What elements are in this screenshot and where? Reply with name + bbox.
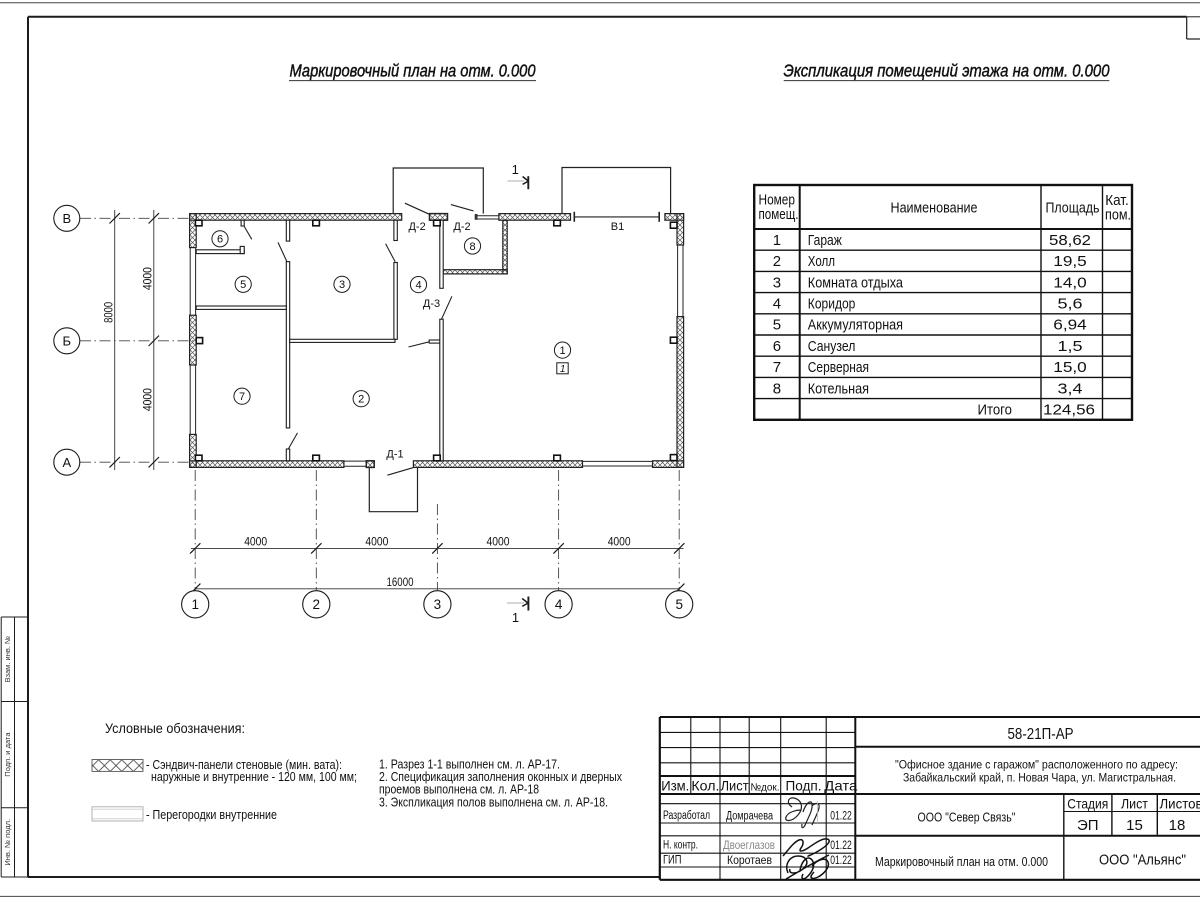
svg-text:5,6: 5,6 (1058, 296, 1083, 313)
svg-text:Площадь: Площадь (1046, 200, 1100, 217)
svg-text:8: 8 (469, 241, 475, 253)
svg-text:Н. контр.: Н. контр. (663, 840, 698, 852)
svg-text:4000: 4000 (608, 536, 631, 548)
svg-text:Д-2: Д-2 (453, 221, 470, 233)
svg-text:ЭП: ЭП (1077, 817, 1099, 834)
svg-text:1: 1 (559, 345, 565, 357)
svg-text:1,5: 1,5 (1058, 338, 1083, 355)
svg-text:4: 4 (773, 296, 781, 313)
svg-text:Серверная: Серверная (808, 359, 869, 376)
svg-text:Итого: Итого (978, 402, 1013, 419)
svg-text:Забайкальский край, п. Новая Ч: Забайкальский край, п. Новая Чара, ул. М… (903, 770, 1176, 784)
svg-text:1: 1 (191, 597, 199, 612)
svg-text:Б: Б (63, 334, 72, 349)
svg-text:18: 18 (1169, 817, 1186, 834)
svg-text:В1: В1 (611, 221, 624, 233)
svg-text:помещ.: помещ. (759, 206, 799, 223)
svg-text:Экспликация помещений этажа на: Экспликация помещений этажа на отм. 0.00… (784, 61, 1110, 81)
svg-text:Условные обозначения:: Условные обозначения: (105, 721, 245, 736)
svg-text:8: 8 (773, 380, 781, 397)
svg-text:3: 3 (773, 274, 781, 291)
svg-text:4000: 4000 (143, 388, 155, 411)
svg-text:Стадия: Стадия (1067, 795, 1108, 811)
svg-text:2: 2 (313, 597, 321, 612)
svg-text:19,5: 19,5 (1053, 253, 1087, 270)
svg-text:- Перегородки внутренние: - Перегородки внутренние (146, 808, 277, 822)
svg-text:7: 7 (773, 359, 781, 376)
svg-text:Д-3: Д-3 (423, 298, 440, 310)
svg-text:5: 5 (675, 597, 683, 612)
svg-text:Домрачева: Домрачева (726, 810, 773, 822)
svg-text:В: В (62, 211, 71, 226)
svg-text:Комната отдыха: Комната отдыха (808, 274, 904, 291)
svg-text:Лист: Лист (1121, 795, 1149, 811)
svg-text:4: 4 (555, 597, 563, 612)
svg-text:Дата: Дата (824, 777, 857, 793)
svg-text:5: 5 (773, 317, 781, 334)
svg-text:58-21П-АР: 58-21П-АР (1008, 726, 1074, 743)
svg-text:01.22: 01.22 (830, 810, 852, 822)
svg-text:4: 4 (415, 280, 421, 292)
svg-text:Подп.: Подп. (786, 777, 822, 793)
svg-text:Изм.: Изм. (661, 777, 689, 793)
svg-text:5: 5 (240, 279, 246, 291)
svg-text:1: 1 (512, 162, 519, 177)
svg-text:14,0: 14,0 (1053, 274, 1087, 291)
svg-text:А: А (62, 455, 71, 470)
svg-text:2: 2 (358, 394, 364, 406)
svg-text:пом.: пом. (1105, 207, 1131, 224)
svg-text:6: 6 (773, 338, 781, 355)
svg-text:58,62: 58,62 (1049, 232, 1091, 249)
svg-text:01.22: 01.22 (830, 855, 852, 867)
svg-text:7: 7 (239, 391, 245, 403)
svg-text:Листов: Листов (1160, 795, 1200, 811)
svg-text:Лист: Лист (721, 777, 750, 793)
svg-text:Санузел: Санузел (808, 338, 856, 355)
svg-text:6: 6 (217, 234, 223, 246)
svg-text:3. Экспликация полов выполнена: 3. Экспликация полов выполнена см. л. АР… (379, 795, 608, 809)
svg-text:Гараж: Гараж (808, 232, 842, 249)
svg-text:1: 1 (512, 610, 519, 625)
svg-text:Котельная: Котельная (808, 380, 869, 397)
svg-text:Инв. № подл.: Инв. № подл. (3, 819, 12, 866)
svg-text:Коротаев: Коротаев (727, 855, 772, 867)
svg-text:1: 1 (773, 232, 781, 249)
svg-text:16000: 16000 (387, 577, 414, 589)
svg-text:№док.: №док. (751, 781, 780, 793)
svg-text:Наименование: Наименование (891, 200, 978, 217)
svg-text:наружные и внутренние - 120 мм: наружные и внутренние - 120 мм, 100 мм; (151, 770, 357, 784)
svg-text:6,94: 6,94 (1053, 317, 1087, 334)
svg-text:4000: 4000 (244, 536, 267, 548)
svg-text:Маркировочный план на отм. 0.0: Маркировочный план на отм. 0.000 (875, 854, 1048, 869)
svg-text:3,4: 3,4 (1058, 380, 1083, 397)
svg-text:3: 3 (434, 597, 442, 612)
svg-text:Д-2: Д-2 (408, 221, 425, 233)
svg-text:"Офисное здание с гаражом" рас: "Офисное здание с гаражом" расположенног… (895, 757, 1178, 771)
svg-text:Аккумуляторная: Аккумуляторная (808, 317, 903, 334)
svg-text:124,56: 124,56 (1043, 402, 1095, 419)
svg-text:Взам. инв. №: Взам. инв. № (3, 636, 12, 682)
svg-text:Кол.: Кол. (691, 777, 719, 793)
svg-text:Двоеглазов: Двоеглазов (723, 840, 775, 852)
svg-text:Холл: Холл (808, 253, 835, 270)
svg-text:4000: 4000 (365, 536, 388, 548)
svg-text:3: 3 (339, 279, 345, 291)
svg-text:ООО "Север Связь": ООО "Север Связь" (918, 810, 1016, 825)
svg-text:01.22: 01.22 (830, 840, 852, 852)
svg-text:Маркировочный план на отм. 0.0: Маркировочный план на отм. 0.000 (290, 61, 536, 81)
svg-text:2: 2 (773, 253, 781, 270)
svg-text:Подп. и дата: Подп. и дата (3, 732, 12, 777)
svg-text:4000: 4000 (143, 267, 155, 290)
svg-text:15,0: 15,0 (1053, 359, 1087, 376)
svg-text:Коридор: Коридор (808, 296, 856, 313)
svg-text:4000: 4000 (487, 536, 510, 548)
svg-text:15: 15 (1126, 817, 1143, 834)
svg-text:Разработал: Разработал (663, 810, 710, 822)
svg-text:1: 1 (560, 364, 566, 375)
svg-text:8000: 8000 (104, 302, 116, 323)
svg-text:Д-1: Д-1 (386, 449, 403, 461)
svg-text:ООО "Альянс": ООО "Альянс" (1099, 852, 1186, 869)
svg-text:ГИП: ГИП (663, 855, 682, 867)
